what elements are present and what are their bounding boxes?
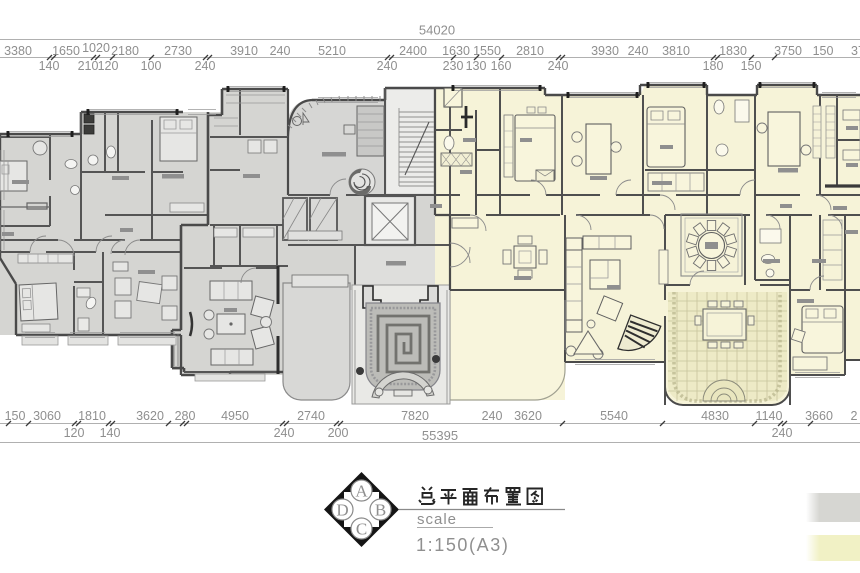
svg-text:1810: 1810 [78,409,106,423]
svg-text:240: 240 [270,44,291,58]
svg-text:1020: 1020 [82,41,110,55]
svg-text:240: 240 [482,409,503,423]
svg-text:240: 240 [548,59,569,73]
svg-text:240: 240 [274,426,295,440]
svg-text:2810: 2810 [516,44,544,58]
svg-text:160: 160 [491,59,512,73]
svg-text:210: 210 [78,59,99,73]
svg-text:280: 280 [175,409,196,423]
svg-text:1:150(A3): 1:150(A3) [416,535,509,555]
svg-text:140: 140 [39,59,60,73]
svg-text:55395: 55395 [422,428,458,443]
svg-text:54020: 54020 [419,23,455,38]
svg-text:3810: 3810 [662,44,690,58]
svg-text:3930: 3930 [591,44,619,58]
svg-text:230: 230 [443,59,464,73]
svg-text:240: 240 [195,59,216,73]
svg-text:B: B [375,501,386,520]
svg-text:150: 150 [741,59,762,73]
svg-text:7820: 7820 [401,409,429,423]
svg-text:2740: 2740 [297,409,325,423]
svg-text:1830: 1830 [719,44,747,58]
svg-text:scale: scale [417,511,457,528]
svg-text:200: 200 [328,426,349,440]
svg-text:2: 2 [851,409,858,423]
svg-text:1650: 1650 [52,44,80,58]
svg-text:5210: 5210 [318,44,346,58]
svg-text:C: C [356,520,367,539]
svg-text:120: 120 [64,426,85,440]
svg-text:4830: 4830 [701,409,729,423]
svg-text:180: 180 [703,59,724,73]
svg-text:3060: 3060 [33,409,61,423]
svg-text:2180: 2180 [111,44,139,58]
svg-text:4950: 4950 [221,409,249,423]
svg-text:A: A [355,482,368,501]
svg-text:2400: 2400 [399,44,427,58]
svg-text:240: 240 [377,59,398,73]
svg-text:5540: 5540 [600,409,628,423]
svg-text:3620: 3620 [136,409,164,423]
svg-text:3380: 3380 [4,44,32,58]
svg-text:150: 150 [5,409,26,423]
svg-text:120: 120 [98,59,119,73]
svg-text:140: 140 [100,426,121,440]
svg-text:1140: 1140 [756,409,783,423]
svg-text:240: 240 [772,426,793,440]
svg-text:3910: 3910 [230,44,258,58]
svg-text:1630: 1630 [442,44,470,58]
svg-text:150: 150 [813,44,834,58]
svg-text:3750: 3750 [774,44,802,58]
svg-text:D: D [336,501,348,520]
svg-text:2730: 2730 [164,44,192,58]
svg-text:130: 130 [466,59,487,73]
svg-text:37: 37 [851,44,860,58]
svg-text:3660: 3660 [805,409,833,423]
svg-text:240: 240 [628,44,649,58]
svg-text:3620: 3620 [514,409,542,423]
svg-text:100: 100 [141,59,162,73]
